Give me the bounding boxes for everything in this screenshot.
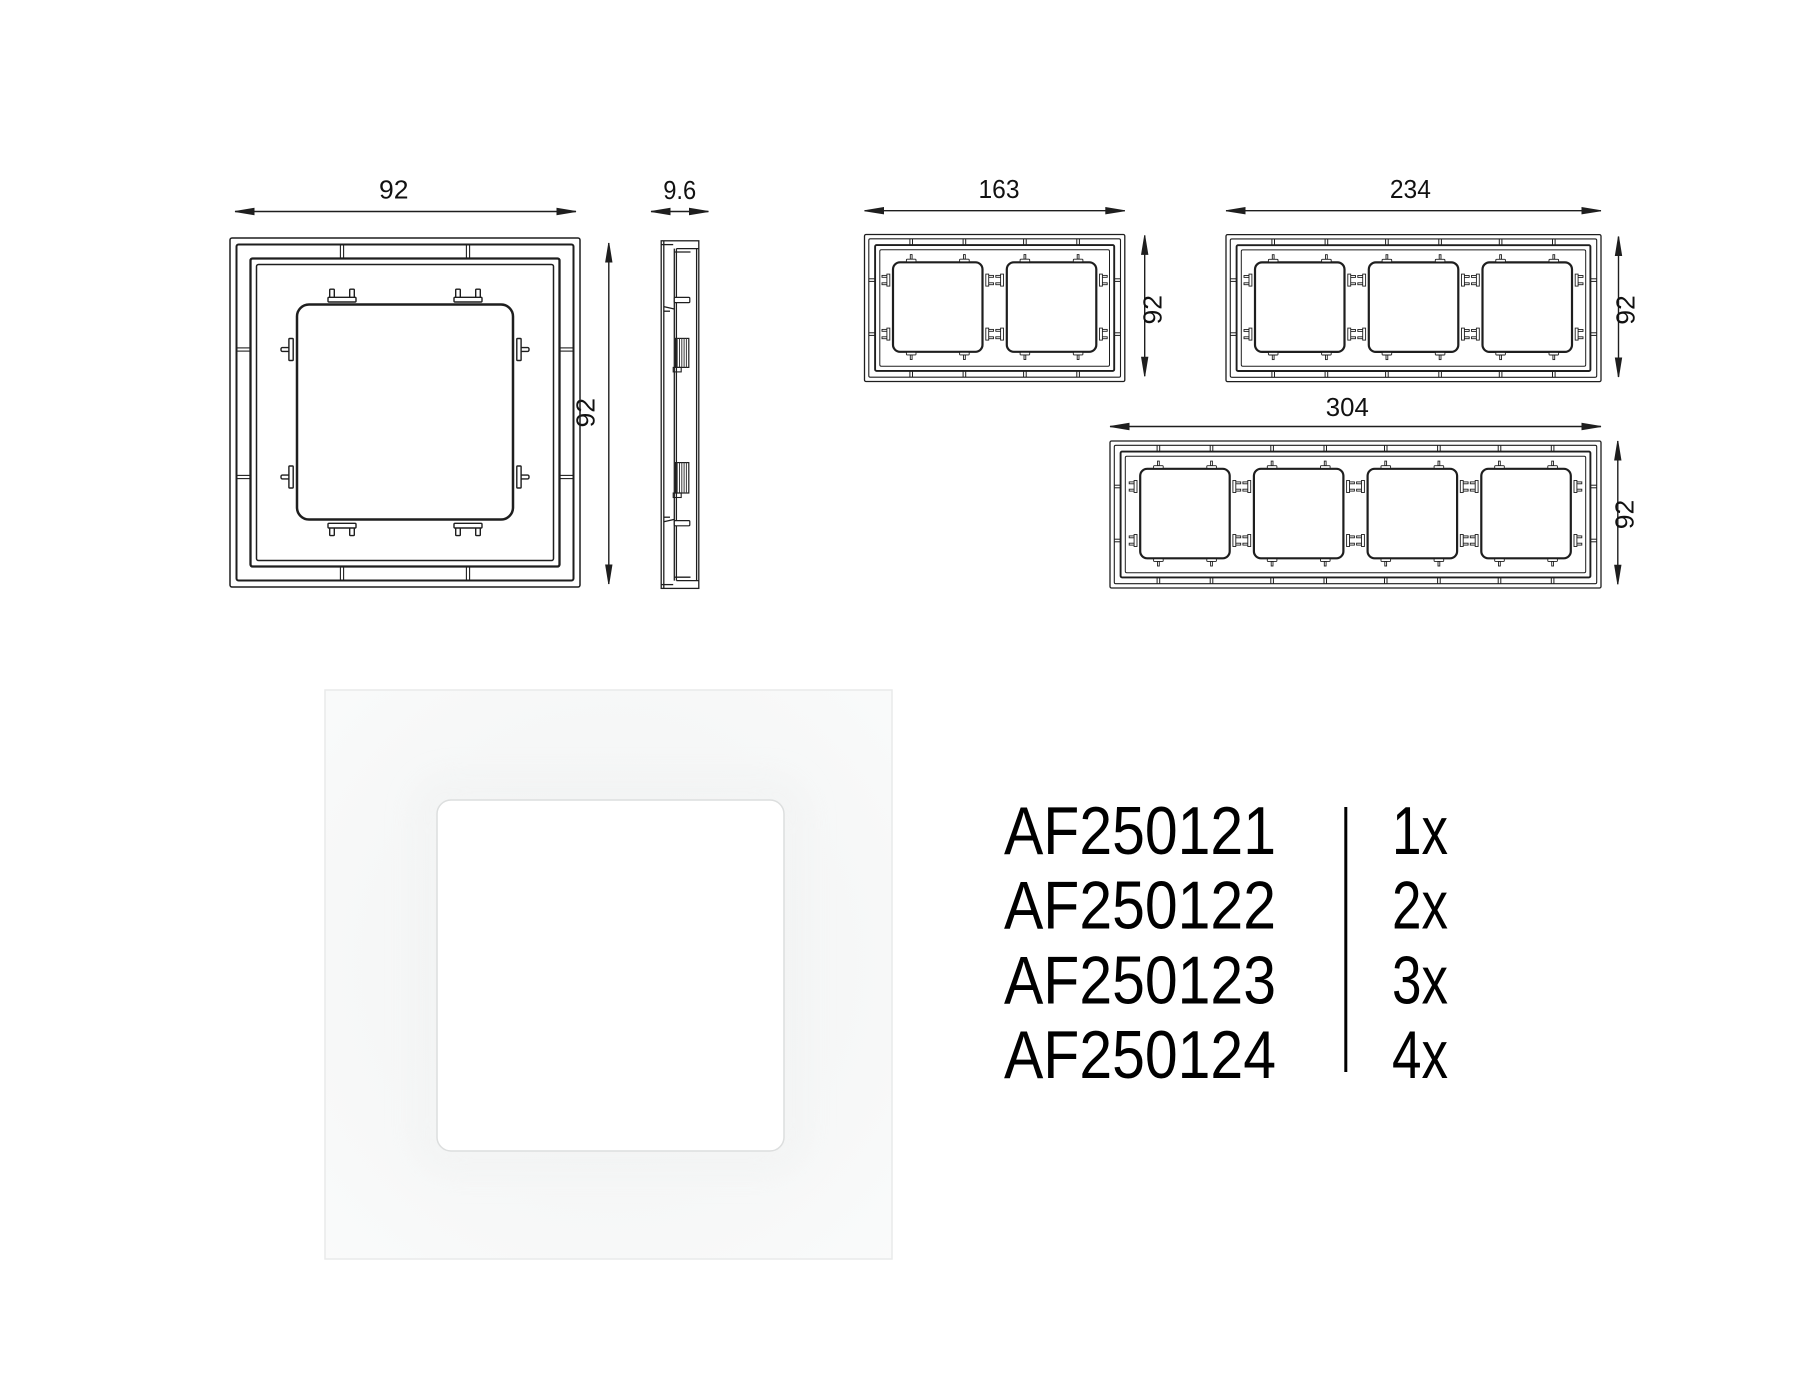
svg-text:AF250124: AF250124 [1004, 1017, 1276, 1093]
svg-text:9.6: 9.6 [663, 175, 696, 205]
svg-text:92: 92 [570, 398, 600, 428]
svg-text:2x: 2x [1392, 868, 1448, 944]
svg-text:92: 92 [379, 175, 409, 205]
svg-text:234: 234 [1390, 174, 1431, 204]
svg-text:AF250121: AF250121 [1004, 793, 1276, 869]
svg-text:AF250122: AF250122 [1004, 868, 1276, 944]
svg-text:1x: 1x [1392, 793, 1448, 869]
svg-text:3x: 3x [1392, 942, 1448, 1018]
svg-text:304: 304 [1326, 392, 1369, 422]
svg-text:AF250123: AF250123 [1004, 942, 1276, 1018]
svg-text:92: 92 [1610, 500, 1640, 530]
svg-text:4x: 4x [1392, 1017, 1448, 1093]
svg-text:92: 92 [1610, 295, 1640, 325]
svg-text:92: 92 [1137, 295, 1167, 325]
svg-text:163: 163 [979, 174, 1020, 204]
